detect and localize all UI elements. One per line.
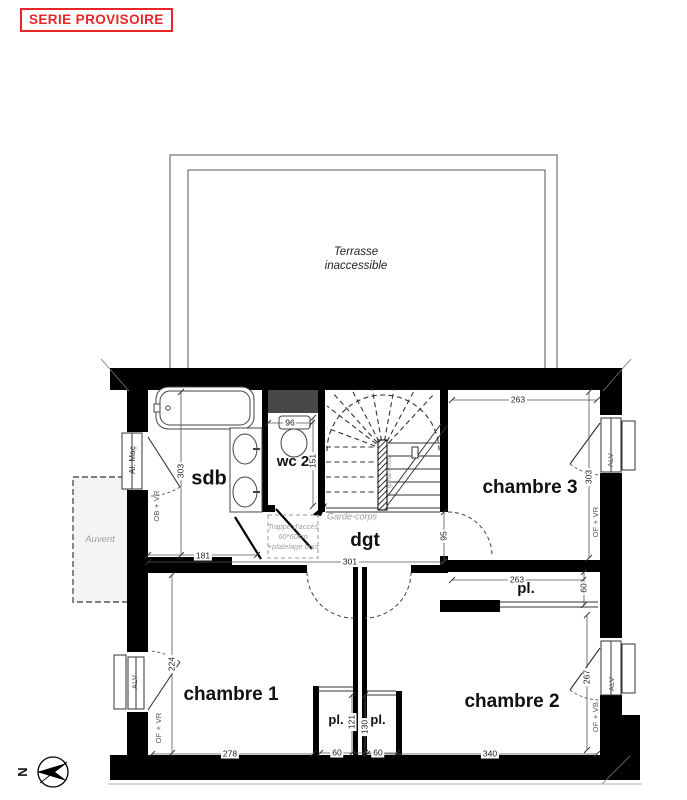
room-label-chambre3: chambre 3 [482,478,577,498]
window-ch1-sill-label: ALV [131,675,139,689]
floor-plan: SERIE PROVISOIRE Terrasse inaccessible A… [0,0,687,800]
garde-corps-vertical-label: garde-corps [387,456,393,488]
dim-wc-width: 96 [283,419,296,428]
north-compass [37,757,68,787]
room-label-dgt: dgt [350,531,380,551]
window-ch3-sill-label: ALV [607,453,615,467]
trappe-label-line2: 60*60cm [278,533,308,541]
dim-pl-ch3-depth: 60 [580,581,589,594]
dim-ch2-depth: 267 [583,668,592,686]
provisional-stamp: SERIE PROVISOIRE [20,8,173,32]
closet-label-1: pl. [328,713,343,727]
bathtub [154,387,254,429]
trappe-label-line1: Trappe d'accès [268,523,319,531]
garde-corps-label: Garde-corps [327,512,377,521]
dim-pl-ch3-width: 263 [508,576,526,585]
dim-pl1-depth: 121 [348,713,357,731]
terrasse-label-line2: inaccessible [325,260,388,272]
window-ch1-type-label: OF + VR [155,713,163,744]
window-ch2-type-label: OF + VB [592,702,600,732]
window-ch3-type-label: OF + VR [592,507,600,538]
north-label: N [16,767,30,776]
dim-ch1-width: 278 [221,750,239,759]
dim-pl2-width: 60 [371,749,384,758]
double-washbasin [230,428,262,512]
dim-sdb-depth: 303 [177,462,186,480]
trappe-label-line3: +platelage bois [268,543,319,551]
staircase [312,388,447,516]
dim-ch3-depth: 303 [585,468,594,486]
dim-ch3-width: 263 [509,396,527,405]
dim-sdb-width: 181 [194,552,212,561]
room-label-sdb: sdb [191,469,227,490]
dim-pl1-width: 60 [330,749,343,758]
wc-duct [268,390,318,413]
window-ch2-sill-label: ALV [608,677,616,691]
dim-ch2-width: 340 [481,750,499,759]
room-label-chambre1: chambre 1 [183,685,278,705]
room-label-wc2: wc 2 [277,454,310,470]
dim-pl2-depth: 130 [361,718,370,736]
closet-label-2: pl. [370,713,385,727]
auvent-label: Auvent [85,535,115,545]
stair-railing-hatch [378,440,387,510]
window-sdb-type-label: OB + VR [153,490,161,521]
dim-dgt-depth: 95 [440,529,449,542]
dim-dgt-width: 301 [341,558,359,567]
dim-ch1-depth: 224 [168,655,177,673]
room-label-chambre2: chambre 2 [464,692,559,712]
terrasse-label-line1: Terrasse [334,246,378,258]
window-sdb-frame-label: Al. Maç [129,446,137,474]
dim-wc-depth: 151 [309,452,318,470]
